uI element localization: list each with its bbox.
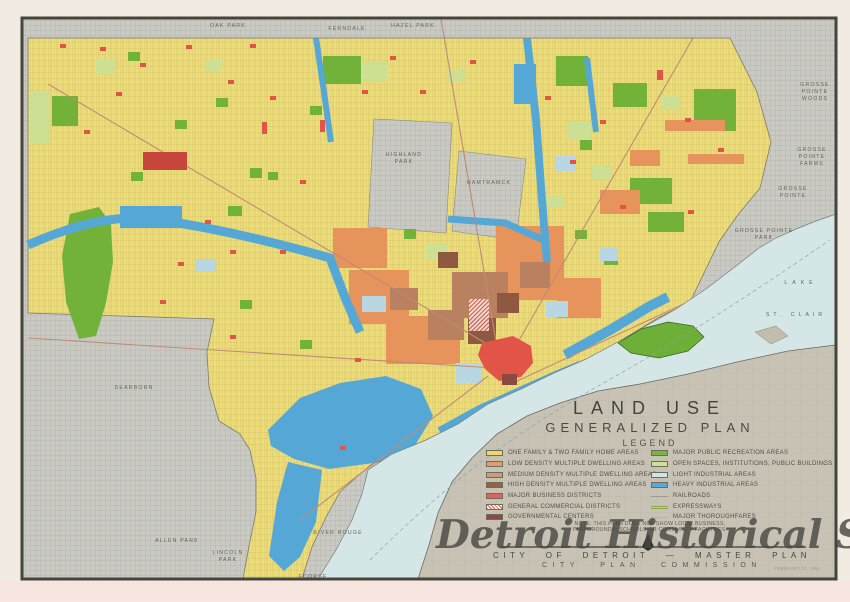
legend-item-label: MEDIUM DENSITY MULTIPLE DWELLING AREAS — [508, 472, 657, 478]
legend-swatch — [651, 506, 668, 509]
legend-item-label: LIGHT INDUSTRIAL AREAS — [673, 472, 756, 478]
legend-swatch — [486, 472, 503, 478]
plate-date: FEBRUARY 13, 1951 — [758, 566, 820, 571]
legend-item-label: MAJOR PUBLIC RECREATION AREAS — [673, 450, 788, 456]
legend-item-label: MAJOR BUSINESS DISTRICTS — [508, 493, 602, 499]
map-label: GROSSE POINTE — [735, 228, 794, 234]
scanned-map-photo: OAK PARK FERNDALE HAZEL PARK GROSSE POIN… — [0, 0, 850, 602]
map-label: PARK — [219, 557, 238, 563]
legend-item-label: OPEN SPACES, INSTITUTIONS, PUBLIC BUILDI… — [673, 461, 832, 467]
map-label: GROSSE — [797, 147, 826, 153]
legend-item: MAJOR BUSINESS DISTRICTS — [486, 491, 650, 502]
map-label: POINTE — [802, 89, 829, 95]
map-label: OAK PARK — [210, 23, 246, 29]
legend-item-label: HIGH DENSITY MULTIPLE DWELLING AREAS — [508, 482, 647, 488]
map-label: POINTE — [780, 193, 807, 199]
map-label: HAZEL PARK — [391, 23, 435, 29]
legend-item-label: EXPRESSWAYS — [673, 504, 722, 510]
legend-swatch — [651, 472, 668, 478]
governmental-center — [502, 374, 517, 385]
map-label: DEARBORN — [114, 385, 153, 391]
map-title: LAND USE — [470, 398, 830, 419]
map-label: GROSSE — [800, 82, 829, 88]
legend-item: HIGH DENSITY MULTIPLE DWELLING AREAS — [486, 480, 650, 491]
legend-item: EXPRESSWAYS — [651, 501, 823, 512]
legend-swatch — [651, 482, 668, 488]
general-commercial-area — [469, 299, 489, 331]
legend-item: GENERAL COMMERCIAL DISTRICTS — [486, 501, 650, 512]
legend-item-label: LOW DENSITY MULTIPLE DWELLING AREAS — [508, 461, 645, 467]
legend-item-label: RAILROADS — [673, 493, 710, 499]
highland-park-enclave — [368, 119, 452, 233]
map-label: LAKE — [784, 280, 817, 286]
chandler-park — [648, 212, 684, 232]
map-subtitle: GENERALIZED PLAN — [470, 420, 830, 435]
legend-item: HEAVY INDUSTRIAL AREAS — [651, 480, 823, 491]
legend-swatch — [486, 493, 503, 499]
watermark: Detroit Historical Society — [436, 512, 836, 558]
legend-item: MEDIUM DENSITY MULTIPLE DWELLING AREAS — [486, 469, 650, 480]
paper-bottom-edge — [0, 582, 850, 602]
map-label: HIGHLAND — [386, 152, 422, 158]
map-label: FARMS — [800, 161, 824, 167]
palmer-park — [323, 56, 361, 84]
legend-item-label: ONE FAMILY & TWO FAMILY HOME AREAS — [508, 450, 639, 456]
legend-swatch — [651, 493, 668, 499]
map-label: POINTE — [799, 154, 826, 160]
legend-item: ONE FAMILY & TWO FAMILY HOME AREAS — [486, 448, 650, 459]
legend-swatch — [651, 450, 668, 456]
map-label: ALLEN PARK — [155, 538, 199, 544]
map-label: PARK — [395, 159, 414, 165]
legend-heading: LEGEND — [470, 438, 830, 448]
map-label: ST. CLAIR — [766, 312, 826, 318]
legend-item-label: GENERAL COMMERCIAL DISTRICTS — [508, 504, 620, 510]
legend-item: OPEN SPACES, INSTITUTIONS, PUBLIC BUILDI… — [651, 459, 823, 470]
legend-swatch — [486, 450, 503, 456]
legend-item: LOW DENSITY MULTIPLE DWELLING AREAS — [486, 459, 650, 470]
map-label: HAMTRAMCK — [467, 180, 511, 186]
map-label: FERNDALE — [328, 26, 365, 32]
legend-swatch — [651, 461, 668, 467]
map-label: RIVER ROUGE — [313, 530, 363, 536]
legend-item: RAILROADS — [651, 491, 823, 502]
map-label: PARK — [755, 235, 774, 241]
legend-swatch — [486, 461, 503, 467]
map-label: WOODS — [802, 96, 828, 102]
map-label: LINCOLN — [213, 550, 244, 556]
legend-item: LIGHT INDUSTRIAL AREAS — [651, 469, 823, 480]
legend-item: MAJOR PUBLIC RECREATION AREAS — [651, 448, 823, 459]
legend-item-label: HEAVY INDUSTRIAL AREAS — [673, 482, 758, 488]
legend-swatch — [486, 504, 503, 510]
legend-swatch — [486, 482, 503, 488]
map-label: GROSSE — [778, 186, 807, 192]
